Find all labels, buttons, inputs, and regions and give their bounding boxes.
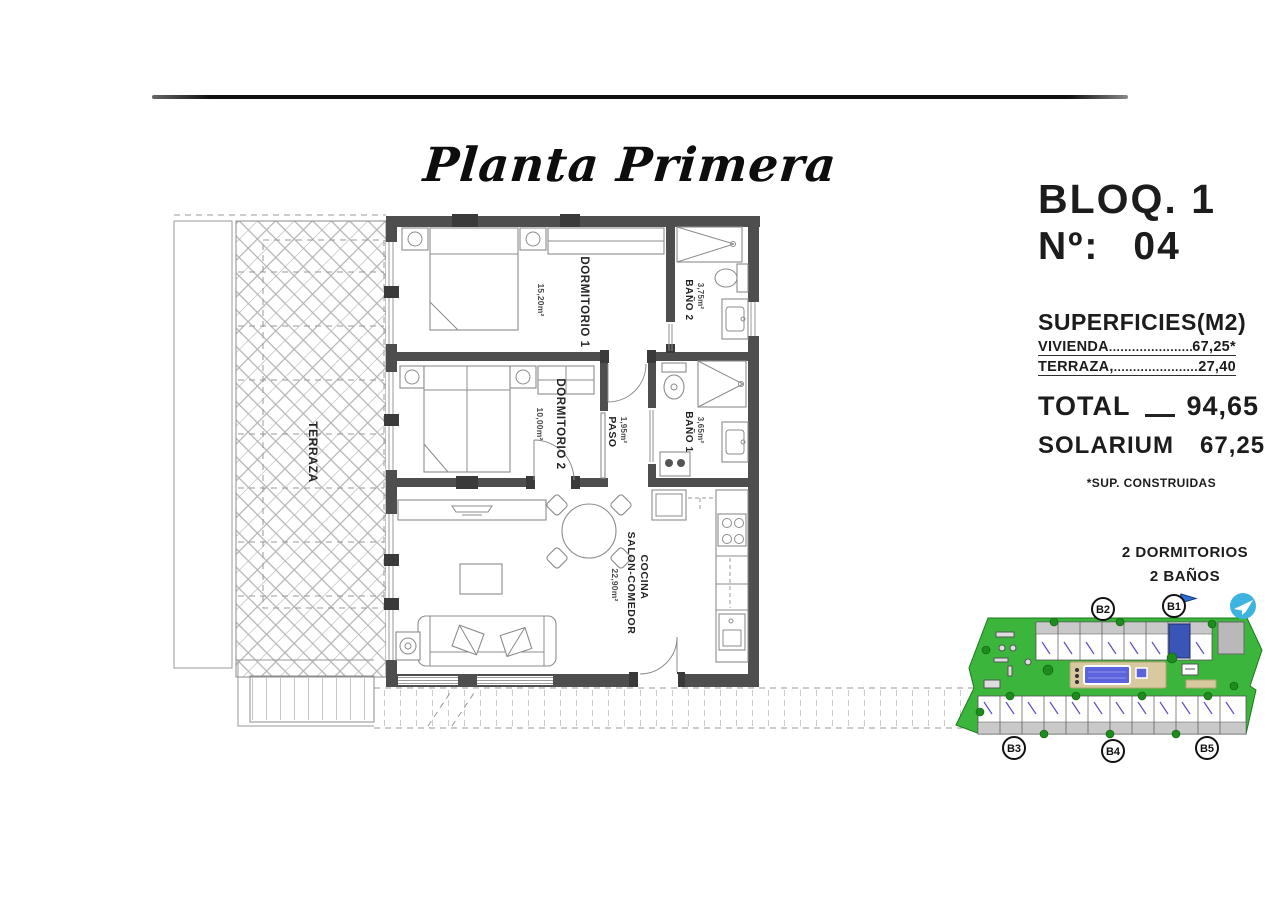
vivienda-value: 67,25* [1192, 339, 1236, 355]
surface-row-terraza: TERRAZA, ............................ 27… [1038, 359, 1236, 376]
logo-icon [1230, 593, 1256, 619]
unit-number-label: Nº: [1038, 225, 1099, 269]
dormitorio1-area: 15,20m² [536, 283, 546, 316]
site-bottom-units [978, 696, 1246, 734]
paso-label: PASO [606, 416, 618, 447]
unit-number: Nº: 04 [1038, 225, 1262, 269]
solarium-value: 67,25 [1200, 432, 1265, 460]
surfaces-footnote: *SUP. CONSTRUIDAS [1038, 476, 1216, 490]
cocina-label-line2: SALON-COMEDOR [625, 532, 637, 635]
dormitorio1-label: DORMITORIO 1 [578, 256, 590, 347]
total-label: TOTAL [1038, 391, 1131, 422]
page-title: Planta Primera [378, 138, 883, 193]
site-top-units [1036, 622, 1212, 660]
room-dormitorio2: 10,00m² DORMITORIO 2 [400, 366, 594, 472]
feature-dormitorios: 2 DORMITORIOS [1100, 544, 1270, 561]
paso-area: 1,95m² [619, 417, 628, 444]
floor-plan: TERRAZA [160, 200, 1010, 765]
bano2-label: BAÑO 2 [683, 279, 696, 320]
block-b4-label: B4 [1106, 746, 1121, 758]
cocina-area: 22,90m² [610, 568, 620, 601]
room-cocina-salon: COCINA SALON-COMEDOR 22,90m² [396, 490, 748, 666]
room-bano1: BAÑO 1 3,65m² [660, 361, 748, 476]
top-rule [152, 95, 1128, 99]
room-bano2: BAÑO 2 3,75m² [677, 227, 748, 339]
vivienda-leader: ............................ [1109, 340, 1192, 354]
solarium-label: SOLARIUM [1038, 432, 1174, 460]
unit-number-value: 04 [1133, 225, 1180, 269]
total-dash [1145, 414, 1175, 417]
room-dormitorio1: 15,20m² DORMITORIO 1 [402, 228, 664, 348]
terraza-value: 27,40 [1198, 359, 1236, 375]
terraza-leader: ............................ [1114, 360, 1199, 374]
feature-banos: 2 BAÑOS [1100, 568, 1270, 585]
vivienda-label: VIVIENDA [1038, 339, 1109, 355]
total-row: TOTAL 94,65 [1038, 391, 1262, 422]
bano1-area: 3,65m² [696, 417, 705, 444]
total-value: 94,65 [1187, 391, 1260, 422]
terraza-zone: TERRAZA [174, 215, 386, 677]
bano1-label: BAÑO 1 [683, 411, 696, 452]
site-plan-map: B2 B1 B3 B4 B5 [950, 592, 1270, 782]
block-b3-label: B3 [1007, 743, 1021, 755]
site-gray-block [1218, 622, 1244, 654]
pool [1084, 666, 1130, 684]
surfaces-heading: SUPERFICIES(M2) [1038, 309, 1262, 336]
surface-row-vivienda: VIVIENDA ............................ 67… [1038, 339, 1236, 356]
block-b5-label: B5 [1200, 743, 1214, 755]
site-courtyard [1070, 662, 1216, 688]
cocina-label-line1: COCINA [638, 554, 650, 599]
unit-features: 2 DORMITORIOS 2 BAÑOS [1100, 544, 1270, 585]
terraza-label-row: TERRAZA, [1038, 359, 1114, 375]
dormitorio2-area: 10,00m² [535, 407, 545, 440]
solarium-row: SOLARIUM 67,25 [1038, 432, 1262, 460]
block-b2-label: B2 [1096, 604, 1110, 616]
block-b1-label: B1 [1167, 601, 1181, 613]
room-paso: PASO 1,95m² [606, 416, 628, 447]
info-panel: BLOQ. 1 Nº: 04 SUPERFICIES(M2) VIVIENDA … [1038, 176, 1262, 490]
block-title: BLOQ. 1 [1038, 176, 1262, 223]
bano2-area: 3,75m² [696, 283, 705, 310]
dormitorio2-label: DORMITORIO 2 [554, 378, 566, 469]
terraza-label: TERRAZA [306, 421, 320, 483]
floor-plan-svg: TERRAZA [160, 200, 1010, 760]
